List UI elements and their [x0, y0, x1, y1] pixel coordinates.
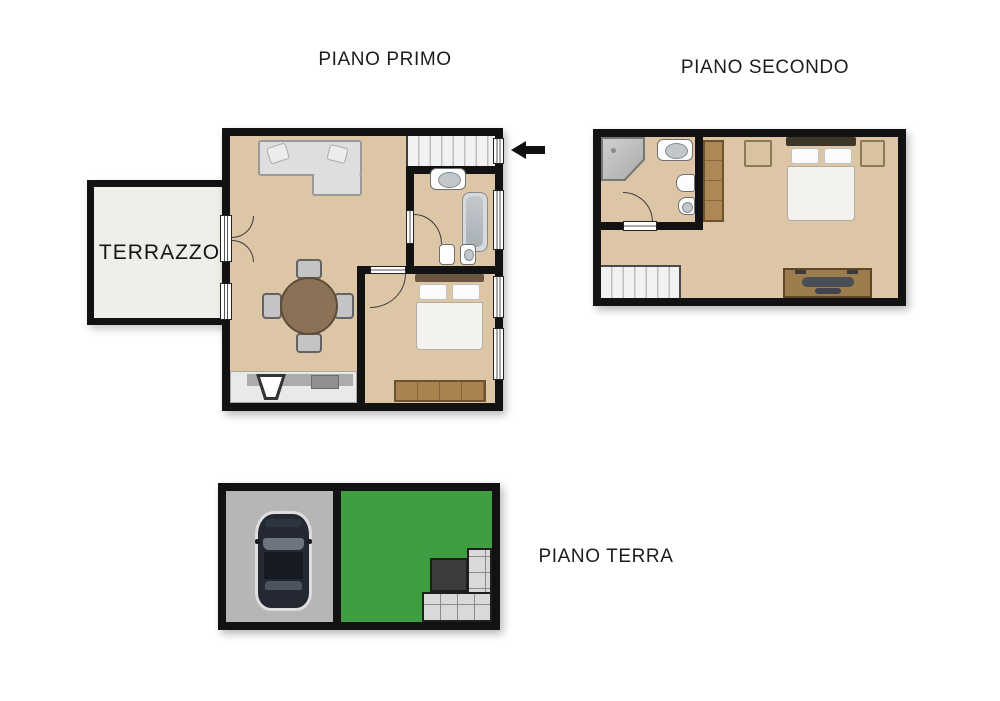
desk-handle-left — [795, 270, 806, 274]
dining-chair-west — [262, 293, 282, 319]
bed2-duvet — [787, 166, 855, 221]
bed-pillow-left — [419, 284, 447, 300]
bed2-pillow-right — [824, 148, 852, 164]
bathroom2-bottom-wall-right — [657, 222, 703, 230]
arrow-shaft — [525, 146, 545, 154]
car — [255, 512, 312, 610]
round-dining-table — [280, 277, 338, 335]
bidet-bowl — [464, 249, 474, 261]
bathroom2-right-wall — [695, 137, 703, 230]
first-floor-title: PIANO PRIMO — [310, 49, 460, 71]
bathroom2-bottom-wall-left — [601, 222, 623, 230]
bed-duvet — [416, 302, 483, 350]
bathroom-window — [493, 190, 504, 250]
terrace-label: TERRAZZO — [99, 241, 220, 265]
bathroom2-door — [623, 221, 657, 231]
paved-steps-horizontal — [422, 592, 492, 622]
entrance-arrow-icon — [511, 141, 545, 159]
shower-drain — [611, 148, 616, 153]
car-roof — [264, 552, 303, 579]
wardrobe2 — [703, 140, 724, 222]
ground-floor-title: PIANO TERRA — [531, 546, 681, 568]
bathtub — [462, 192, 488, 252]
toilet — [439, 244, 455, 265]
desk-chair — [802, 277, 854, 287]
toilet2 — [676, 174, 695, 192]
washbasin2-bowl — [665, 143, 688, 159]
terrace-french-door — [220, 215, 232, 262]
wardrobe — [394, 380, 486, 402]
car-rear-window — [265, 581, 302, 590]
landing-slab — [430, 558, 468, 592]
bidet2 — [678, 197, 695, 215]
bedroom-window-2 — [493, 328, 504, 380]
car-mirror-right — [306, 539, 312, 544]
double-bed — [415, 274, 484, 350]
washbasin-bowl — [438, 172, 461, 188]
corner-sofa-chaise — [312, 174, 362, 196]
bathtub-basin — [466, 196, 483, 247]
bed2-headboard — [786, 137, 856, 146]
staircase2 — [601, 265, 681, 298]
first-floor-plan — [222, 128, 503, 411]
car-hood — [265, 519, 302, 527]
cooktop — [311, 375, 339, 389]
car-windshield — [263, 538, 304, 550]
kitchen-counter — [230, 371, 357, 403]
bathroom-left-wall-upper — [406, 166, 414, 210]
dining-chair-south — [296, 333, 322, 353]
kitchen-sink-basin — [259, 377, 283, 397]
bedroom-left-wall — [357, 266, 365, 403]
bedroom-top-wall-right — [406, 266, 495, 274]
staircase — [408, 136, 495, 166]
living-room-window — [220, 283, 232, 320]
second-floor-title: PIANO SECONDO — [675, 57, 855, 79]
bathroom-door — [406, 210, 414, 244]
terrace: TERRAZZO — [87, 180, 232, 325]
nightstand-right — [860, 140, 885, 167]
nightstand-left — [744, 140, 772, 167]
desk-chair-seat — [815, 288, 841, 294]
bidet2-bowl — [682, 202, 693, 213]
desk — [783, 268, 872, 298]
bed2-pillow-left — [791, 148, 819, 164]
kitchen-sink — [254, 374, 288, 400]
double-bed2 — [786, 137, 856, 222]
bedroom-door — [370, 266, 406, 274]
bedroom-window-1 — [493, 276, 504, 318]
arrow-head — [511, 141, 526, 159]
bed-pillow-right — [452, 284, 480, 300]
bidet — [460, 244, 476, 265]
entrance-door — [493, 138, 504, 164]
desk-handle-right — [847, 270, 858, 274]
car-mirror-left — [255, 539, 261, 544]
dining-chair-north — [296, 259, 322, 279]
washbasin — [430, 168, 466, 190]
floor-plan-page: PIANO PRIMO PIANO SECONDO PIANO TERRA TE… — [0, 0, 1000, 701]
second-floor-plan — [593, 129, 906, 306]
ground-floor-plan — [218, 483, 500, 630]
bed-headboard — [415, 274, 484, 282]
washbasin2 — [657, 139, 693, 161]
